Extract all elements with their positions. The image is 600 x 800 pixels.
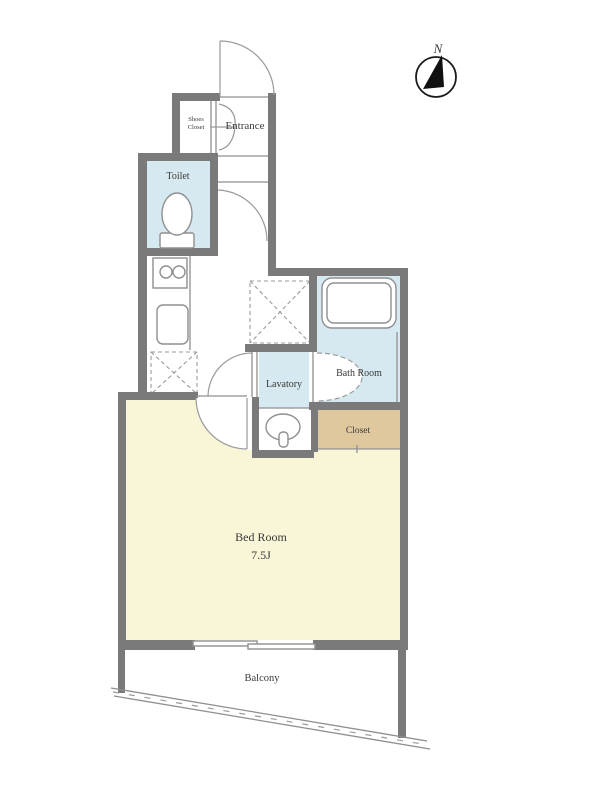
toilet-fixture: [160, 193, 194, 248]
lavatory-doorway-line: [252, 352, 257, 397]
closet-label: Closet: [346, 426, 371, 436]
bathtub: [322, 278, 396, 328]
bath-room-label: Bath Room: [336, 368, 382, 379]
wall-segment: [309, 273, 317, 352]
kitchen-stove: [153, 258, 187, 288]
washer-space: [250, 281, 310, 343]
wall-segment: [245, 344, 317, 352]
wall-segment: [138, 153, 147, 398]
kitchen-sink: [157, 305, 188, 344]
sliding-window: [193, 641, 315, 649]
bedroom-size-label: 7.5J: [251, 548, 271, 562]
entrance-label: Entrance: [225, 120, 264, 132]
wall-segment: [118, 640, 195, 650]
shoes-closet-label-line1: Shoes: [188, 116, 204, 123]
toilet-label: Toilet: [166, 171, 189, 182]
hall-door: [218, 190, 267, 241]
refrigerator-space: [151, 352, 197, 394]
wall-segment: [252, 450, 314, 458]
wall-segment: [118, 392, 198, 400]
wall-segment: [138, 248, 218, 256]
lavatory-sink: [266, 414, 300, 447]
wall-segment: [138, 153, 218, 161]
wall-segment: [118, 650, 125, 693]
lavatory-door: [208, 353, 252, 396]
wall-segment: [172, 93, 180, 155]
wall-segment: [313, 640, 408, 650]
wall-segment: [400, 268, 408, 650]
floor-plan: N Shoes Closet Entrance Toilet Lavatory …: [0, 0, 600, 800]
wall-segment: [210, 153, 218, 256]
wall-segment: [268, 93, 276, 276]
entrance-door: [220, 41, 274, 97]
wall-segment: [398, 650, 406, 738]
compass: N: [416, 41, 456, 97]
floor-plan-drawing: N Shoes Closet Entrance Toilet Lavatory …: [0, 0, 600, 800]
wall-segment: [252, 397, 259, 458]
balcony-railing: [111, 688, 430, 749]
wall-segment: [309, 402, 408, 410]
shoes-closet-label-line2: Closet: [188, 124, 205, 131]
bedroom-label: Bed Room: [235, 530, 287, 544]
compass-north-label: N: [433, 41, 444, 56]
lavatory-label: Lavatory: [266, 379, 302, 390]
wall-segment: [268, 268, 408, 276]
balcony-label: Balcony: [245, 673, 281, 684]
wall-segment: [118, 392, 126, 650]
